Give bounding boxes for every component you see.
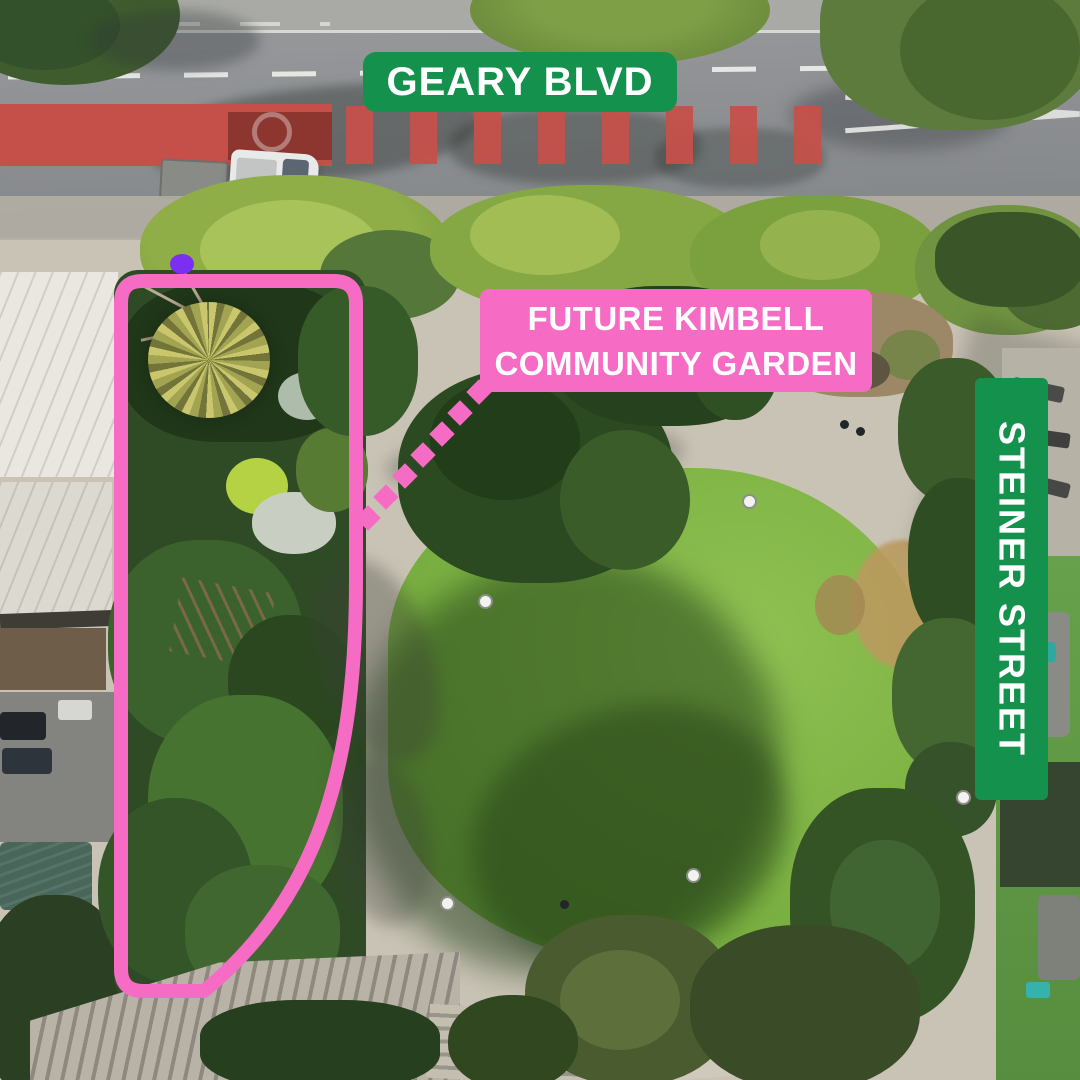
- aerial-map: GEARY BLVD FUTURE KIMBELL COMMUNITY GARD…: [0, 0, 1080, 1080]
- street-label-geary-blvd: GEARY BLVD: [363, 52, 677, 112]
- garden-label-line1: FUTURE KIMBELL: [528, 296, 825, 341]
- street-label-steiner-street: STEINER STREET: [975, 378, 1048, 800]
- connector-dotted-line: [355, 379, 491, 530]
- site-outline: [121, 281, 356, 991]
- purple-marker: [170, 254, 194, 274]
- garden-label-line2: COMMUNITY GARDEN: [494, 341, 857, 386]
- annotation-overlay: [0, 0, 1080, 1080]
- garden-label: FUTURE KIMBELL COMMUNITY GARDEN: [480, 289, 872, 392]
